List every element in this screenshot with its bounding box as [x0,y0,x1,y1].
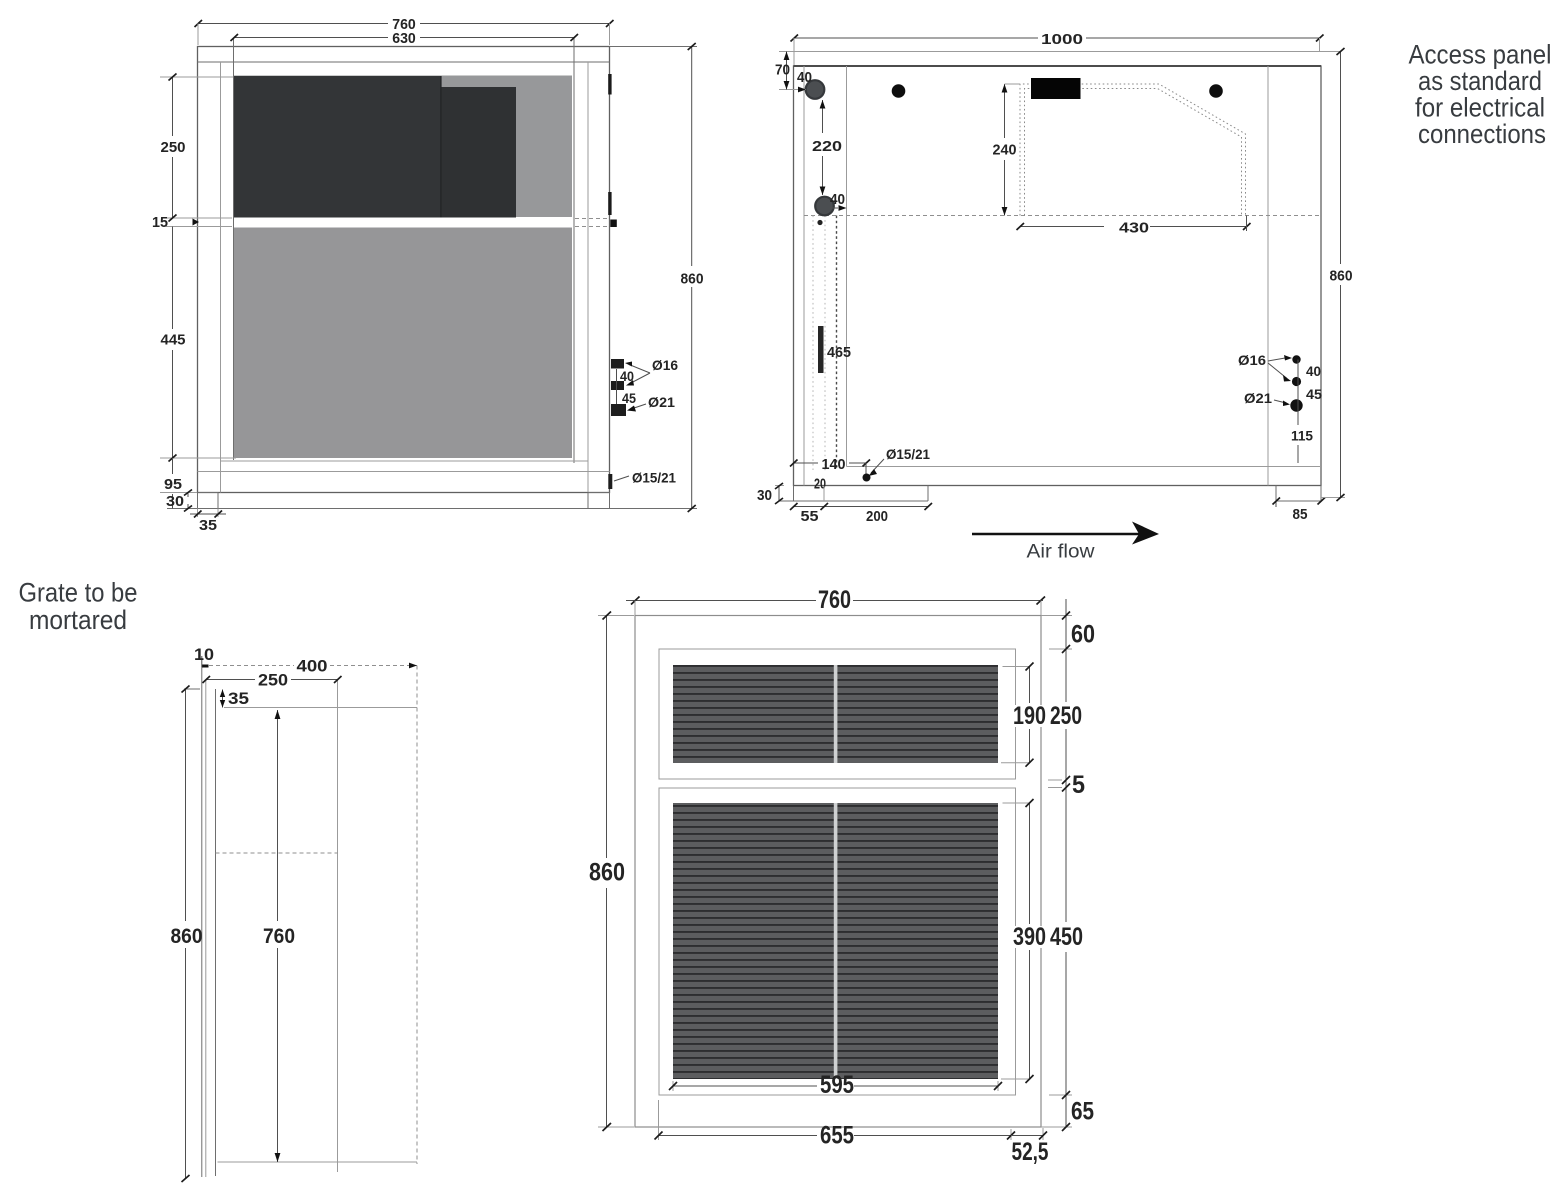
svg-text:85: 85 [1293,506,1308,523]
svg-text:250: 250 [1050,702,1082,730]
svg-text:115: 115 [1291,429,1313,444]
svg-text:45: 45 [1306,387,1323,402]
svg-text:430: 430 [1119,220,1149,237]
svg-text:15: 15 [152,214,168,231]
svg-text:Ø21: Ø21 [1244,391,1273,406]
svg-text:40: 40 [797,69,812,86]
svg-text:400: 400 [297,657,328,676]
svg-text:45: 45 [622,391,636,406]
svg-text:630: 630 [392,30,416,47]
svg-text:connections: connections [1418,119,1546,149]
svg-text:Ø16: Ø16 [652,358,678,373]
svg-text:mortared: mortared [29,605,127,635]
svg-text:220: 220 [812,138,842,155]
svg-text:190: 190 [1013,702,1046,730]
svg-text:10: 10 [194,645,214,664]
svg-text:40: 40 [1306,364,1321,379]
svg-text:70: 70 [775,62,790,79]
svg-text:for electrical: for electrical [1415,93,1545,123]
svg-text:760: 760 [263,925,295,948]
svg-text:1000: 1000 [1041,31,1083,48]
svg-text:240: 240 [993,142,1017,159]
svg-text:Ø16: Ø16 [1238,353,1267,368]
svg-text:860: 860 [1330,268,1353,285]
svg-text:40: 40 [830,191,845,208]
svg-text:655: 655 [820,1122,854,1150]
svg-text:55: 55 [801,508,819,525]
svg-text:140: 140 [822,456,846,473]
svg-text:760: 760 [818,586,851,614]
svg-text:445: 445 [161,332,186,349]
svg-text:30: 30 [757,487,772,504]
svg-text:60: 60 [1071,621,1095,649]
svg-text:95: 95 [164,476,182,493]
svg-text:Air flow: Air flow [1027,541,1096,563]
svg-text:390: 390 [1013,923,1046,951]
svg-text:5: 5 [1072,771,1085,799]
svg-text:52,5: 52,5 [1012,1138,1049,1166]
svg-text:Grate to be: Grate to be [19,578,138,608]
svg-text:Ø15/21: Ø15/21 [632,471,676,486]
svg-text:Ø21: Ø21 [648,395,676,410]
svg-text:65: 65 [1071,1098,1094,1126]
svg-text:860: 860 [171,925,203,948]
svg-text:35: 35 [228,689,249,708]
svg-text:200: 200 [866,508,888,525]
svg-text:450: 450 [1050,923,1083,951]
svg-text:35: 35 [199,517,217,534]
svg-text:860: 860 [681,271,704,288]
svg-text:250: 250 [258,671,288,690]
svg-text:Access panel: Access panel [1409,40,1552,70]
svg-text:595: 595 [820,1071,854,1099]
svg-text:465: 465 [827,344,851,361]
svg-text:as standard: as standard [1418,66,1542,96]
svg-text:860: 860 [589,859,625,887]
svg-text:250: 250 [161,139,186,156]
svg-text:30: 30 [166,493,184,510]
svg-text:Ø15/21: Ø15/21 [886,447,930,462]
